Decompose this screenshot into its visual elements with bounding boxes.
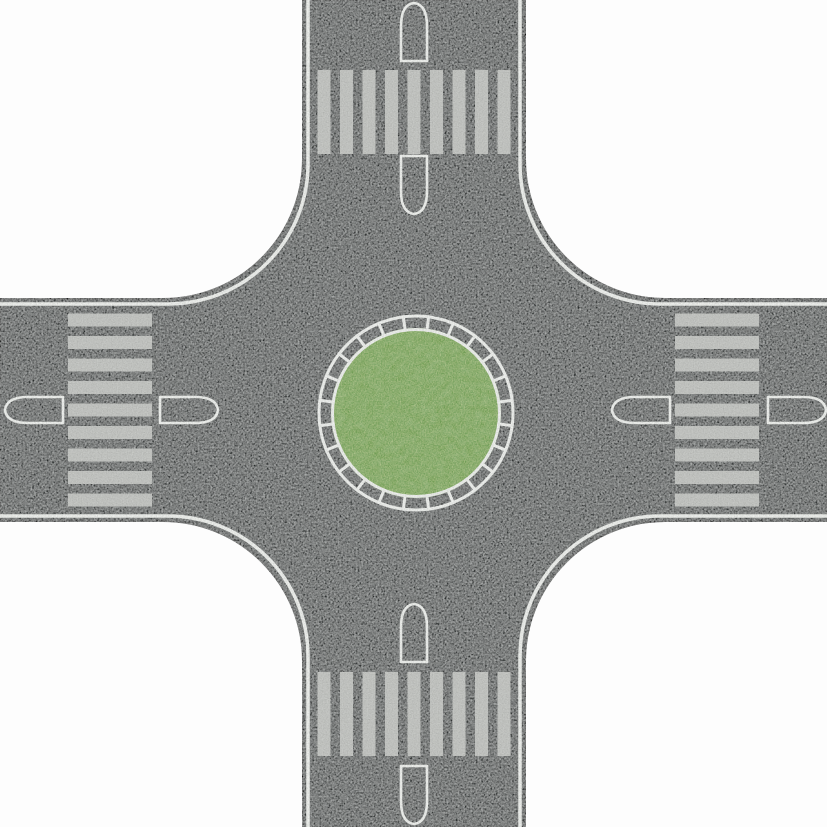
crosswalk-stripe <box>675 314 759 327</box>
crosswalk-stripe <box>385 70 398 154</box>
ring-tick <box>497 400 513 402</box>
crosswalk-stripe <box>408 672 421 756</box>
crosswalk-stripe <box>475 672 488 756</box>
crosswalk-stripe <box>318 672 331 756</box>
crosswalk-stripe <box>318 70 331 154</box>
crosswalk-stripe <box>68 314 152 327</box>
crosswalk-stripe <box>68 494 152 507</box>
crosswalk-left <box>68 314 152 507</box>
crosswalk-top <box>318 70 511 154</box>
crosswalk-stripe <box>68 336 152 349</box>
ring-tick <box>403 494 405 510</box>
crosswalk-stripe <box>675 426 759 439</box>
crosswalk-stripe <box>675 471 759 484</box>
ring-tick <box>427 494 429 510</box>
crosswalk-stripe <box>68 426 152 439</box>
crosswalk-stripe <box>430 672 443 756</box>
ring-tick <box>427 315 429 331</box>
ring-tick <box>318 400 334 402</box>
crosswalk-stripe <box>340 70 353 154</box>
crosswalk-stripe <box>363 70 376 154</box>
crosswalk-right <box>675 314 759 507</box>
crosswalk-stripe <box>675 336 759 349</box>
crosswalk-stripe <box>68 471 152 484</box>
crosswalk-stripe <box>498 672 511 756</box>
crosswalk-stripe <box>385 672 398 756</box>
roundabout-plan-sheet <box>0 0 827 827</box>
crosswalk-stripe <box>498 70 511 154</box>
crosswalk-stripe <box>363 672 376 756</box>
ring-tick <box>318 424 334 426</box>
crosswalk-stripe <box>68 381 152 394</box>
crosswalk-stripe <box>675 381 759 394</box>
crosswalk-stripe <box>675 359 759 372</box>
crosswalk-stripe <box>675 404 759 417</box>
crosswalk-stripe <box>68 359 152 372</box>
crosswalk-bottom <box>318 672 511 756</box>
crosswalk-stripe <box>675 494 759 507</box>
crosswalk-stripe <box>408 70 421 154</box>
crosswalk-stripe <box>68 449 152 462</box>
crosswalk-stripe <box>453 672 466 756</box>
crosswalk-stripe <box>340 672 353 756</box>
crosswalk-stripe <box>475 70 488 154</box>
crosswalk-stripe <box>68 404 152 417</box>
roundabout-plan-svg <box>0 0 827 827</box>
crosswalk-stripe <box>453 70 466 154</box>
ring-tick <box>497 424 513 426</box>
ring-tick <box>403 315 405 331</box>
crosswalk-stripe <box>675 449 759 462</box>
crosswalk-stripe <box>430 70 443 154</box>
